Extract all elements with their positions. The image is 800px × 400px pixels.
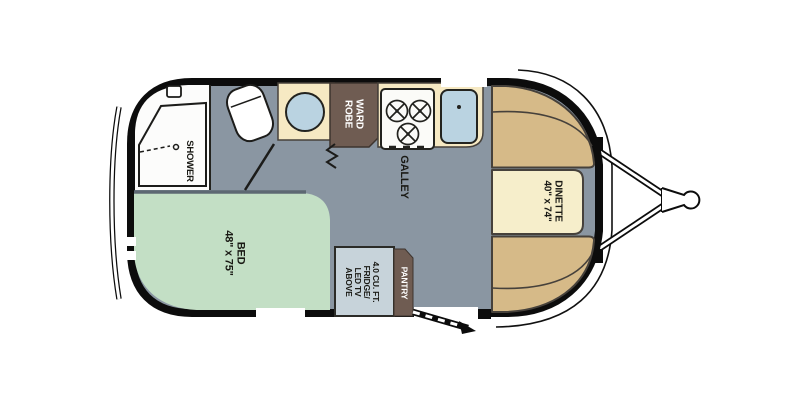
shower-label-text: SHOWER bbox=[184, 140, 194, 182]
shower-vent bbox=[167, 86, 181, 97]
dinette-label-size: 40" x 74" bbox=[542, 180, 553, 221]
floorplan-svg bbox=[0, 0, 800, 400]
fridge-label-line2: FRIDGE/ bbox=[362, 262, 371, 303]
wardrobe-label: WARD ROBE bbox=[343, 99, 364, 129]
fridge-label-line1: 4.0 CU. FT. bbox=[371, 262, 380, 303]
galley-label-text: GALLEY bbox=[397, 155, 409, 198]
cooktop bbox=[381, 89, 434, 149]
window-rear-1 bbox=[126, 237, 136, 246]
hitch-coupler bbox=[662, 188, 699, 212]
fridge-label: 4.0 CU. FT. FRIDGE/ LED TV ABOVE bbox=[344, 262, 380, 303]
door-swing-arrow bbox=[459, 321, 476, 334]
hitch-bar-top-fill bbox=[597, 150, 663, 194]
door-latch-block bbox=[478, 309, 491, 319]
shower-label: SHOWER bbox=[184, 140, 194, 182]
bathroom-floor bbox=[135, 85, 210, 190]
dinette-bench-bottom bbox=[492, 237, 594, 313]
bed-label-size: 48" x 75" bbox=[222, 230, 234, 275]
burner-center bbox=[395, 109, 398, 112]
bed-label: BED 48" x 75" bbox=[222, 230, 245, 275]
entry-door bbox=[413, 307, 491, 334]
pantry-label: PANTRY bbox=[400, 267, 409, 300]
dinette-table bbox=[492, 170, 583, 234]
vanity-sink bbox=[286, 93, 324, 131]
window-rear-2 bbox=[126, 251, 136, 260]
hitch-a-frame bbox=[593, 137, 699, 263]
dinette-label: DINETTE 40" x 74" bbox=[542, 180, 563, 221]
burner-center bbox=[418, 109, 421, 112]
pantry-label-text: PANTRY bbox=[400, 267, 409, 300]
fridge-label-line3: LED TV bbox=[353, 262, 362, 303]
fridge-label-line4: ABOVE bbox=[344, 262, 353, 303]
window-top bbox=[441, 77, 487, 87]
galley-sink bbox=[441, 90, 477, 143]
dinette-label-name: DINETTE bbox=[552, 180, 563, 221]
dinette-bench-top bbox=[492, 86, 594, 168]
hitch-bar-bottom-fill bbox=[597, 206, 663, 250]
galley-label: GALLEY bbox=[397, 155, 409, 198]
wardrobe-label-line2: ROBE bbox=[343, 99, 354, 129]
burner-center bbox=[406, 132, 409, 135]
sink-drain bbox=[457, 105, 461, 109]
floorplan-canvas: SHOWER WARD ROBE GALLEY DINETTE 40" x 74… bbox=[0, 0, 800, 400]
wardrobe-label-line1: WARD bbox=[353, 99, 364, 129]
window-bottom bbox=[256, 308, 305, 318]
bed-label-name: BED bbox=[234, 230, 246, 275]
